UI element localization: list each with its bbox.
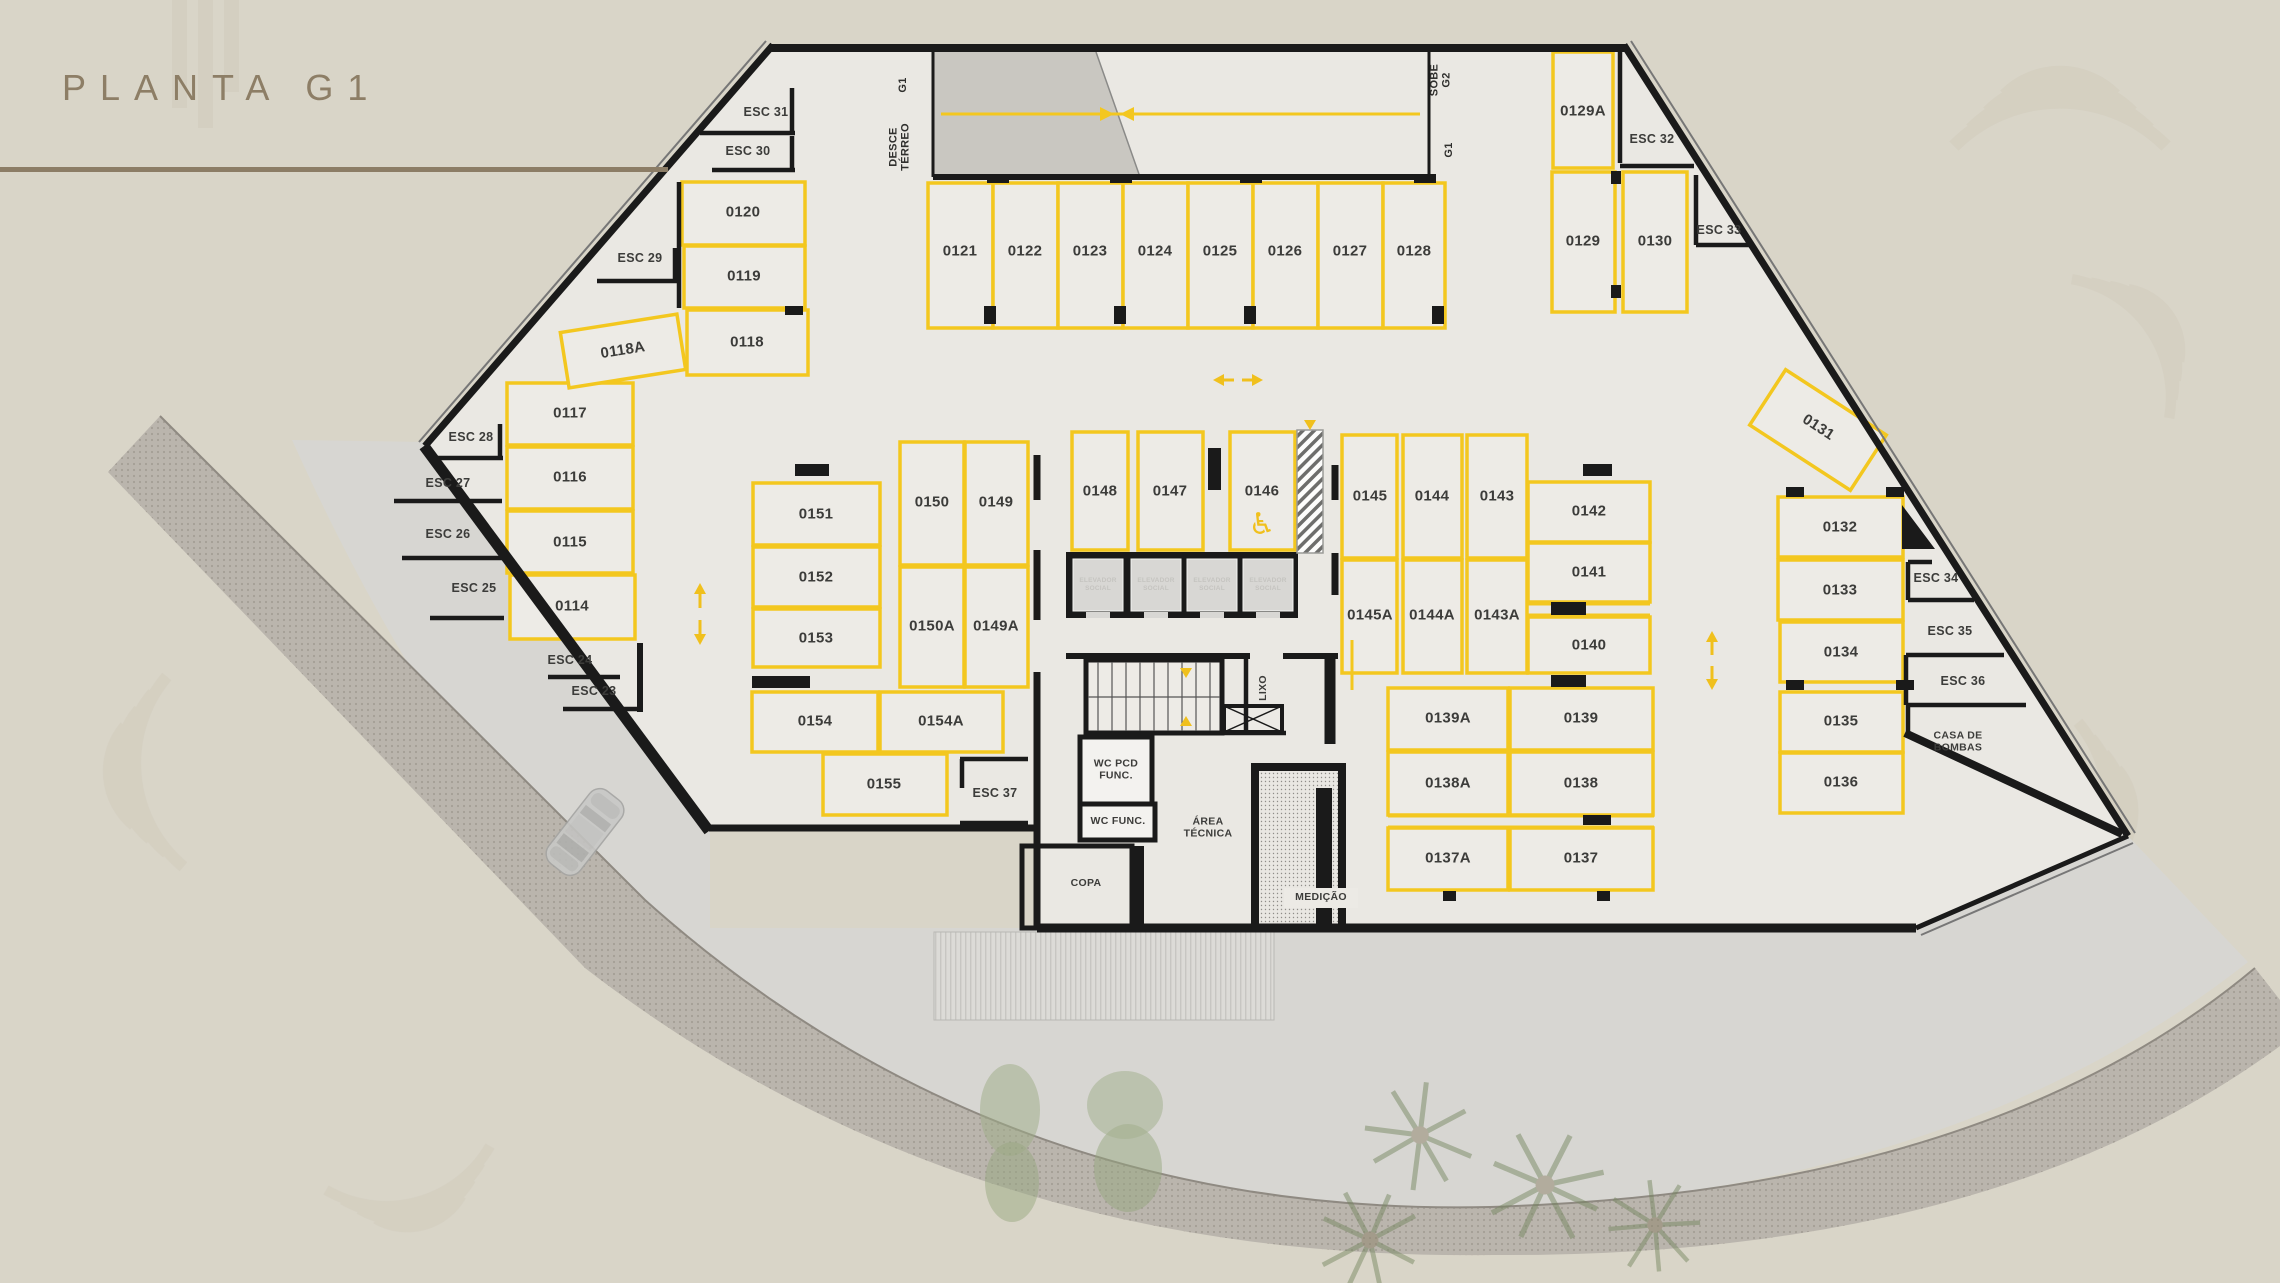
spot-label-0143: 0143: [1480, 489, 1515, 506]
spot-label-0129: 0129: [1566, 234, 1601, 251]
spot-label-0120: 0120: [726, 205, 761, 222]
spot-label-0142: 0142: [1572, 504, 1607, 521]
spot-label-0136: 0136: [1824, 775, 1859, 792]
spot-label-0138: 0138: [1564, 776, 1599, 793]
stair-label-esc26: ESC 26: [426, 527, 471, 541]
stair-label-esc25: ESC 25: [452, 581, 497, 595]
spot-label-0150A: 0150A: [909, 619, 955, 636]
spot-label-0146: 0146: [1245, 484, 1280, 501]
spot-label-0143A: 0143A: [1474, 608, 1520, 625]
stair-core: [1086, 660, 1222, 733]
ramp-direction-down: DESCE TÉRREO: [888, 116, 913, 178]
spot-label-0144A: 0144A: [1409, 608, 1455, 625]
ramp-level-left: G1: [897, 77, 909, 92]
spot-label-0147: 0147: [1153, 484, 1188, 501]
spot-label-0140: 0140: [1572, 638, 1607, 655]
stair-label-esc32: ESC 32: [1630, 132, 1675, 146]
elevator-label-2: ELEVADOR SOCIAL: [1133, 577, 1179, 593]
stair-label-esc24: ESC 24: [548, 653, 593, 667]
stair-label-esc33: ESC 33: [1697, 223, 1742, 237]
spot-label-0133: 0133: [1823, 583, 1858, 600]
stair-label-esc27: ESC 27: [426, 476, 471, 490]
spot-label-0139: 0139: [1564, 711, 1599, 728]
spot-label-0121: 0121: [943, 244, 978, 261]
spot-label-0122: 0122: [1008, 244, 1043, 261]
spot-label-0128: 0128: [1397, 244, 1432, 261]
title-underline: [0, 167, 668, 172]
spot-label-0144: 0144: [1415, 489, 1450, 506]
accessible-parking-icon: ♿: [1249, 507, 1276, 542]
spot-label-0153: 0153: [799, 631, 834, 648]
wc-func-label: WC FUNC.: [1091, 816, 1146, 828]
stair-label-esc29: ESC 29: [618, 251, 663, 265]
spot-label-0117: 0117: [553, 406, 587, 423]
spot-label-0150: 0150: [915, 495, 950, 512]
stair-label-esc28: ESC 28: [449, 430, 494, 444]
wc-pcd-label: WC PCD FUNC.: [1088, 758, 1144, 782]
spot-label-0137: 0137: [1564, 851, 1599, 868]
spot-label-0134: 0134: [1824, 645, 1859, 662]
copa-label: COPA: [1071, 878, 1102, 890]
ramp-level-right: G1: [1443, 142, 1455, 157]
spot-label-0137A: 0137A: [1425, 851, 1471, 868]
stair-label-esc35: ESC 35: [1928, 624, 1973, 638]
spot-label-0155: 0155: [867, 777, 902, 794]
spot-label-0138A: 0138A: [1425, 776, 1471, 793]
spot-label-0119: 0119: [727, 269, 761, 286]
spot-label-0148: 0148: [1083, 484, 1118, 501]
spot-label-0145: 0145: [1353, 489, 1388, 506]
area-tecnica-label: ÁREA TÉCNICA: [1176, 816, 1240, 840]
trash-room: [1224, 706, 1282, 732]
spot-label-0126: 0126: [1268, 244, 1303, 261]
spot-label-0132: 0132: [1823, 520, 1858, 537]
spot-label-0135: 0135: [1824, 714, 1859, 731]
elevator-label-3: ELEVADOR SOCIAL: [1189, 577, 1235, 593]
ramp-direction-up: SOBE G2: [1429, 60, 1454, 100]
elevator-label-4: ELEVADOR SOCIAL: [1245, 577, 1291, 593]
trash-room-label: LIXO: [1258, 675, 1270, 701]
spot-label-0154A: 0154A: [918, 714, 964, 731]
spot-label-0145A: 0145A: [1347, 608, 1393, 625]
stair-label-esc30: ESC 30: [726, 144, 771, 158]
spot-label-0149A: 0149A: [973, 619, 1019, 636]
elevator-label-1: ELEVADOR SOCIAL: [1075, 577, 1121, 593]
spot-label-0124: 0124: [1138, 244, 1173, 261]
spot-label-0125: 0125: [1203, 244, 1238, 261]
entrance-paving: [934, 932, 1274, 1020]
spot-label-0129A: 0129A: [1560, 104, 1606, 121]
stair-label-esc31: ESC 31: [744, 105, 789, 119]
spot-label-0141: 0141: [1572, 565, 1607, 582]
spot-label-0152: 0152: [799, 570, 834, 587]
spot-label-0115: 0115: [553, 535, 587, 552]
spot-label-0127: 0127: [1333, 244, 1368, 261]
stair-label-esc23: ESC 23: [572, 684, 617, 698]
stair-label-esc36: ESC 36: [1941, 674, 1986, 688]
spot-label-0139A: 0139A: [1425, 711, 1471, 728]
spot-label-0123: 0123: [1073, 244, 1108, 261]
site-plan-canvas: ♿: [0, 0, 2280, 1283]
spot-label-0130: 0130: [1638, 234, 1673, 251]
spot-label-0114: 0114: [555, 599, 589, 616]
casa-de-bombas-label: CASA DE BOMBAS: [1920, 730, 1996, 754]
spot-label-0116: 0116: [553, 470, 587, 487]
floor-plan-sheet: PLANTA G1: [0, 0, 2280, 1283]
spot-label-0151: 0151: [799, 507, 834, 524]
stair-label-esc34: ESC 34: [1914, 571, 1959, 585]
spot-label-0154: 0154: [798, 714, 833, 731]
hatch-strip: [1297, 430, 1323, 553]
spot-label-0149: 0149: [979, 495, 1014, 512]
page-title: PLANTA G1: [62, 70, 381, 106]
stair-label-esc37: ESC 37: [973, 786, 1018, 800]
medicao-label: MEDIÇÃO: [1295, 892, 1347, 904]
spot-label-0118: 0118: [730, 335, 764, 352]
